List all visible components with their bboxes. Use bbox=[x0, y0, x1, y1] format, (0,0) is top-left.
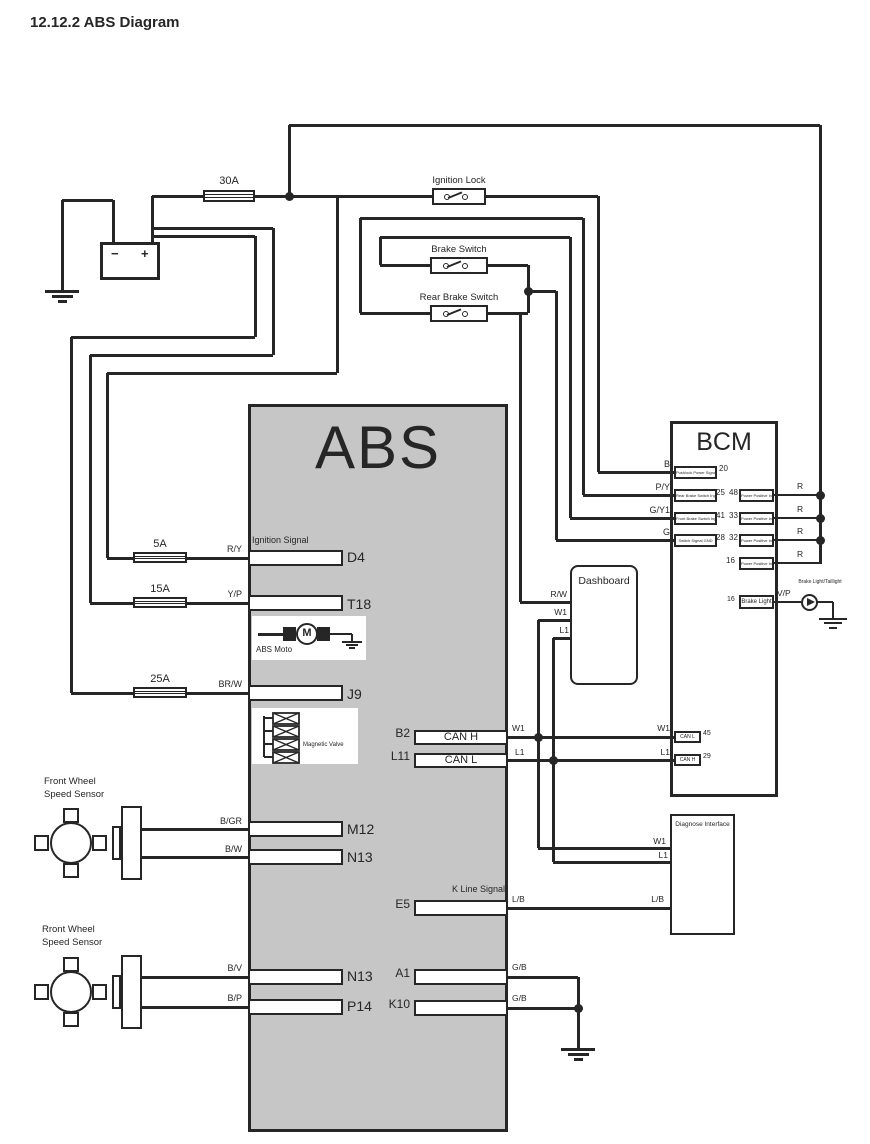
wire-seg-wire-r-48 bbox=[774, 494, 820, 496]
wire-r-48-label: R bbox=[797, 482, 803, 492]
fuse-5a bbox=[133, 552, 187, 563]
junction-dot bbox=[534, 733, 543, 742]
junction-dot bbox=[549, 756, 558, 765]
wire-seg-brake-in-v bbox=[379, 237, 382, 265]
wheel-speed-sensor-icon bbox=[50, 822, 92, 864]
wire-seg-battery-minus-up bbox=[112, 200, 115, 242]
wire-l1-diag-label: L1 bbox=[628, 851, 668, 861]
wire-seg-wire-rw bbox=[520, 601, 570, 604]
motor-terminal-icon bbox=[283, 627, 296, 641]
wire-seg-wire-vp bbox=[774, 601, 801, 603]
wire-seg-wire-r-33 bbox=[774, 517, 820, 519]
fuse-15a bbox=[133, 597, 187, 608]
abs-pin-d4-rect bbox=[248, 550, 343, 566]
switch-contact-icon bbox=[462, 311, 468, 317]
abs-pin-t18-rect bbox=[248, 595, 343, 611]
bcm-pin-16-num: 16 bbox=[726, 556, 735, 565]
ground-icon bbox=[574, 1058, 583, 1061]
wire-vp-label: V/P bbox=[777, 589, 791, 599]
k-line-signal-label: K Line Signal bbox=[405, 884, 505, 894]
abs-pin-j9-label: J9 bbox=[347, 686, 362, 702]
wire-seg-top-rail bbox=[289, 124, 820, 127]
wire-seg-wire-ry bbox=[187, 557, 248, 560]
sensor-lug-icon bbox=[63, 1012, 79, 1027]
wire-seg-brake-loop-top bbox=[380, 236, 570, 239]
wire-seg-wire-g-v bbox=[555, 291, 558, 540]
fuse-25a-label: 25A bbox=[130, 673, 190, 686]
brake-switch bbox=[430, 257, 488, 274]
bcm-pin-32-rect: Power Positive Input bbox=[739, 534, 774, 547]
sensor2-label-line1: Rront Wheel bbox=[42, 925, 95, 936]
ground-icon bbox=[568, 1053, 589, 1056]
bcm-pin-45-num: 45 bbox=[703, 730, 711, 738]
bcm-pin-32-num: 32 bbox=[729, 533, 738, 542]
wire-seg-lamp-gnd-v bbox=[832, 602, 834, 618]
bcm-pin-25-num: 25 bbox=[716, 488, 725, 497]
wire-seg-battery-l1-h bbox=[152, 227, 273, 230]
abs-pin-b2-rect: CAN H bbox=[414, 730, 508, 745]
wire-seg-ignition-out-v bbox=[597, 196, 600, 472]
wire-seg-gb-gnd-v bbox=[577, 1008, 580, 1048]
bcm-pin-48-num: 48 bbox=[729, 488, 738, 497]
wire-seg-rail15-top bbox=[90, 354, 273, 357]
wire-seg-wire-bgr bbox=[140, 828, 248, 831]
wire-b-label: B bbox=[630, 459, 670, 469]
wheel-speed-sensor-icon bbox=[50, 971, 92, 1013]
ground-icon bbox=[824, 622, 842, 624]
abs-pin-t18-label: T18 bbox=[347, 596, 371, 612]
brake-light-taillight-label: Brake Light/Taillight bbox=[770, 580, 870, 586]
abs-pin-p14-rect bbox=[248, 999, 343, 1015]
abs-pin-n13b-rect bbox=[248, 969, 343, 985]
bcm-pin-48-rect: Power Positive Input bbox=[739, 489, 774, 502]
abs-pin-n13a-label: N13 bbox=[347, 849, 373, 865]
sensor-lug-icon bbox=[63, 808, 79, 823]
abs-pin-m12-label: M12 bbox=[347, 821, 374, 837]
wire-w1-bcm-label: W1 bbox=[630, 724, 670, 734]
wire-l1-bcm-label: L1 bbox=[630, 748, 670, 758]
wire-r-33-label: R bbox=[797, 505, 803, 515]
wire-seg-wire-bv bbox=[140, 976, 248, 979]
fuse-30a-label: 30A bbox=[199, 175, 259, 188]
sensor2-label-line2: Speed Sensor bbox=[42, 938, 102, 949]
bcm-pin-16b-rect: Brake Light bbox=[739, 595, 774, 609]
wire-gb-k10-label: G/B bbox=[512, 994, 527, 1004]
rear-brake-switch bbox=[430, 305, 488, 322]
magnetic-valve-label: Magnetic Valve bbox=[303, 742, 344, 749]
ground-icon bbox=[52, 295, 73, 298]
dashboard-box: Dashboard bbox=[570, 565, 638, 685]
battery-plus-terminal: + bbox=[141, 246, 149, 261]
wire-l1-abs-label: L1 bbox=[515, 748, 524, 758]
switch-contact-icon bbox=[462, 194, 468, 200]
sensor-lug-icon bbox=[63, 863, 79, 878]
ignition-lock-switch bbox=[432, 188, 486, 205]
wire-py-label: P/Y bbox=[630, 482, 670, 492]
wire-seg-battery-gnd-v bbox=[61, 200, 64, 290]
ignition-lock-label: Ignition Lock bbox=[404, 176, 514, 187]
wire-seg-battery-minus-h bbox=[62, 199, 113, 202]
wire-seg-wire-w1-can bbox=[508, 736, 674, 739]
ground-icon bbox=[58, 300, 67, 303]
wire-seg-rail15-to-fuse bbox=[90, 602, 133, 605]
wire-seg-wire-yp bbox=[187, 602, 248, 605]
wire-seg-wire-bw bbox=[140, 856, 248, 859]
fuse-25a bbox=[133, 687, 187, 698]
junction-dot bbox=[524, 287, 533, 296]
bcm-pin-41-rect: Front Brake Switch Input bbox=[674, 512, 717, 525]
ground-icon bbox=[342, 641, 362, 643]
wire-seg-battery-l2-h bbox=[152, 235, 255, 238]
wire-seg-l1-to-diagnose bbox=[553, 861, 670, 864]
page-title: 12.12.2 ABS Diagram bbox=[30, 14, 180, 31]
sensor-lug-icon bbox=[92, 984, 107, 1000]
bcm-pin-41-num: 41 bbox=[716, 511, 725, 520]
wire-seg-w1-to-diagnose bbox=[538, 847, 670, 850]
wire-seg-rear-loop-v bbox=[582, 218, 585, 495]
abs-wiring-diagram: 12.12.2 ABS Diagram ABS BCM Dashboard Di… bbox=[0, 0, 870, 1144]
wire-ry-label: R/Y bbox=[182, 544, 242, 554]
wire-w1-dash-label: W1 bbox=[527, 608, 567, 618]
wire-seg-wire-gb-a1 bbox=[508, 976, 578, 979]
wire-seg-l1-to-dashboard bbox=[553, 637, 570, 640]
wire-seg-wire-r-32 bbox=[774, 539, 820, 541]
wire-w1-diag-label: W1 bbox=[626, 837, 666, 847]
bcm-pin-25-rect: Rear Brake Switch Input bbox=[674, 489, 717, 502]
junction-dot bbox=[285, 192, 294, 201]
wire-seg-battery-to-fuse30 bbox=[152, 195, 203, 198]
wire-gb-a1-label: G/B bbox=[512, 963, 527, 973]
wire-seg-wire-g bbox=[556, 539, 674, 542]
wire-seg-rear-in-v bbox=[359, 218, 362, 313]
abs-pin-e5-label: E5 bbox=[370, 898, 410, 912]
magnetic-valve-icon bbox=[272, 725, 300, 738]
junction-dot bbox=[816, 491, 825, 500]
bcm-pin-28-rect: Switch Signal GND bbox=[674, 534, 717, 547]
bcm-pin-33-num: 33 bbox=[729, 511, 738, 520]
wire-gy1-label: G/Y1 bbox=[630, 505, 670, 515]
sensor1-label-line1: Front Wheel bbox=[44, 777, 96, 788]
wire-seg-brake-in-h bbox=[380, 264, 430, 267]
bcm-pin-28-num: 28 bbox=[716, 533, 725, 542]
abs-pin-n13b-label: N13 bbox=[347, 968, 373, 984]
fuse-5a-label: 5A bbox=[130, 538, 190, 551]
wire-seg-brake-out-h bbox=[487, 264, 528, 267]
wire-seg-rail5-top bbox=[107, 372, 337, 375]
wire-seg-ignition-out-h bbox=[486, 195, 598, 198]
wire-seg-w1-to-dashboard bbox=[538, 619, 570, 622]
sensor-connector-large bbox=[121, 955, 142, 1029]
wire-seg-wire-r-16 bbox=[774, 562, 820, 564]
abs-motor-label: ABS Moto bbox=[256, 645, 292, 654]
wire-yp-label: Y/P bbox=[182, 589, 242, 599]
wire-seg-wire-py bbox=[583, 494, 674, 497]
motor-icon: M bbox=[296, 623, 318, 645]
abs-pin-b2-label: B2 bbox=[370, 727, 410, 741]
sensor-connector-small bbox=[112, 975, 121, 1009]
wire-bw-label: B/W bbox=[182, 844, 242, 854]
wire-seg-rear-out-h bbox=[487, 312, 528, 315]
abs-module-title: ABS bbox=[251, 413, 505, 482]
abs-pin-j9-rect bbox=[248, 685, 343, 701]
bcm-pin-29-num: 29 bbox=[703, 753, 711, 761]
switch-blade-icon bbox=[447, 308, 462, 315]
sensor-connector-large bbox=[121, 806, 142, 880]
ground-icon bbox=[349, 647, 354, 649]
dashboard-title: Dashboard bbox=[572, 575, 636, 587]
abs-pin-e5-rect bbox=[414, 900, 508, 916]
wire-seg-wire-gy1 bbox=[570, 517, 674, 520]
wire-seg-wire-rw-v bbox=[519, 313, 522, 602]
brake-light-lamp-icon bbox=[801, 594, 818, 611]
wire-g-label: G bbox=[630, 527, 670, 537]
abs-pin-k10-label: K10 bbox=[370, 998, 410, 1012]
ignition-signal-label: Ignition Signal bbox=[252, 535, 309, 545]
abs-pin-m12-rect bbox=[248, 821, 343, 837]
abs-pin-a1-label: A1 bbox=[370, 967, 410, 981]
wire-r-32-label: R bbox=[797, 527, 803, 537]
wire-seg-battery-l2-v bbox=[254, 236, 257, 337]
wire-seg-battery-l1-v bbox=[272, 228, 275, 355]
wire-seg-motor-wire-left bbox=[258, 633, 284, 636]
fuse-30a bbox=[203, 190, 255, 202]
wire-seg-wire-l1-can bbox=[508, 759, 674, 762]
abs-pin-d4-label: D4 bbox=[347, 549, 365, 565]
battery: − + bbox=[100, 242, 160, 280]
sensor-connector-small bbox=[112, 826, 121, 860]
wire-lb-abs-label: L/B bbox=[512, 895, 525, 905]
wire-seg-rear-in-h bbox=[360, 312, 430, 315]
abs-pin-l11-rect: CAN L bbox=[414, 753, 508, 768]
wire-bp-label: B/P bbox=[182, 993, 242, 1003]
wire-seg-rail5-to-fuse bbox=[107, 557, 133, 560]
wire-w1-abs-label: W1 bbox=[512, 724, 525, 734]
motor-terminal-icon bbox=[317, 627, 330, 641]
wire-seg-wire-b bbox=[598, 471, 674, 474]
diagnose-interface-title: Diagnose Interface bbox=[672, 821, 733, 828]
bcm-pin-16b-num: 16 bbox=[727, 596, 735, 604]
wire-seg-motor-wire-right bbox=[330, 633, 352, 635]
rear-brake-switch-label: Rear Brake Switch bbox=[399, 293, 519, 304]
sensor-lug-icon bbox=[63, 957, 79, 972]
wire-seg-rail25-to-fuse bbox=[71, 692, 133, 695]
brake-switch-label: Brake Switch bbox=[404, 245, 514, 256]
ground-icon bbox=[819, 618, 848, 620]
bcm-pin-20-num: 20 bbox=[719, 464, 728, 473]
junction-dot bbox=[816, 536, 825, 545]
wire-seg-rail25-top bbox=[71, 336, 255, 339]
wire-seg-wire-gb-k10 bbox=[508, 1007, 578, 1010]
wire-r-16-label: R bbox=[797, 550, 803, 560]
magnetic-valve-icon bbox=[272, 751, 300, 764]
wire-seg-wire-brw bbox=[187, 692, 248, 695]
sensor-lug-icon bbox=[92, 835, 107, 851]
switch-blade-icon bbox=[447, 260, 462, 267]
wire-bv-label: B/V bbox=[182, 963, 242, 973]
junction-dot bbox=[816, 514, 825, 523]
wire-rw-label: R/W bbox=[527, 590, 567, 600]
abs-pin-k10-rect bbox=[414, 1000, 508, 1016]
wire-seg-ignition-feed-tee bbox=[336, 196, 339, 373]
ground-icon bbox=[829, 627, 837, 629]
abs-pin-n13a-rect bbox=[248, 849, 343, 865]
wire-l1-dash-label: L1 bbox=[529, 626, 569, 636]
junction-dot bbox=[574, 1004, 583, 1013]
wire-seg-rear-loop-top bbox=[360, 217, 583, 220]
magnetic-valve-icon bbox=[272, 738, 300, 751]
wire-brw-label: BR/W bbox=[182, 679, 242, 689]
abs-module-box: ABS bbox=[248, 404, 508, 1132]
wire-seg-brake-loop-v bbox=[569, 237, 572, 518]
bcm-pin-45-rect: CAN L bbox=[674, 731, 701, 743]
wire-seg-rail15-v bbox=[89, 355, 92, 603]
sensor-lug-icon bbox=[34, 835, 49, 851]
bcm-module-title: BCM bbox=[673, 428, 775, 457]
abs-pin-l11-label: L11 bbox=[370, 750, 410, 764]
wire-seg-rail5-v bbox=[106, 373, 109, 558]
wire-seg-l1-vertical bbox=[552, 638, 555, 862]
wire-bgr-label: B/GR bbox=[182, 816, 242, 826]
wire-seg-rail-30a-up bbox=[288, 125, 291, 196]
abs-pin-a1-rect bbox=[414, 969, 508, 985]
bcm-pin-33-rect: Power Positive Input bbox=[739, 512, 774, 525]
fuse-15a-label: 15A bbox=[130, 583, 190, 596]
ground-icon bbox=[45, 290, 79, 293]
abs-pin-p14-label: P14 bbox=[347, 998, 372, 1014]
diagnose-interface-box: Diagnose Interface bbox=[670, 814, 735, 935]
wire-lb-diag-label: L/B bbox=[624, 895, 664, 905]
switch-contact-icon bbox=[462, 263, 468, 269]
bcm-pin-16-rect: Power Positive Input bbox=[739, 557, 774, 570]
wire-seg-wire-lb bbox=[508, 907, 670, 910]
wire-seg-valve-bus bbox=[263, 716, 265, 757]
wire-seg-fuse30-to-ignition bbox=[255, 195, 432, 198]
ground-icon bbox=[561, 1048, 595, 1051]
bcm-pin-29-rect: CAN H bbox=[674, 754, 701, 766]
battery-minus-terminal: − bbox=[111, 246, 119, 261]
wire-seg-rail25-v bbox=[70, 337, 73, 693]
wire-seg-lamp-out bbox=[817, 601, 833, 603]
bcm-pin-20-rect: Pushlock Power Signal bbox=[674, 466, 717, 479]
ground-icon bbox=[346, 644, 359, 646]
sensor1-label-line2: Speed Sensor bbox=[44, 790, 104, 801]
wire-seg-wire-bp bbox=[140, 1006, 248, 1009]
sensor-lug-icon bbox=[34, 984, 49, 1000]
magnetic-valve-icon bbox=[272, 712, 300, 725]
switch-blade-icon bbox=[448, 191, 463, 198]
